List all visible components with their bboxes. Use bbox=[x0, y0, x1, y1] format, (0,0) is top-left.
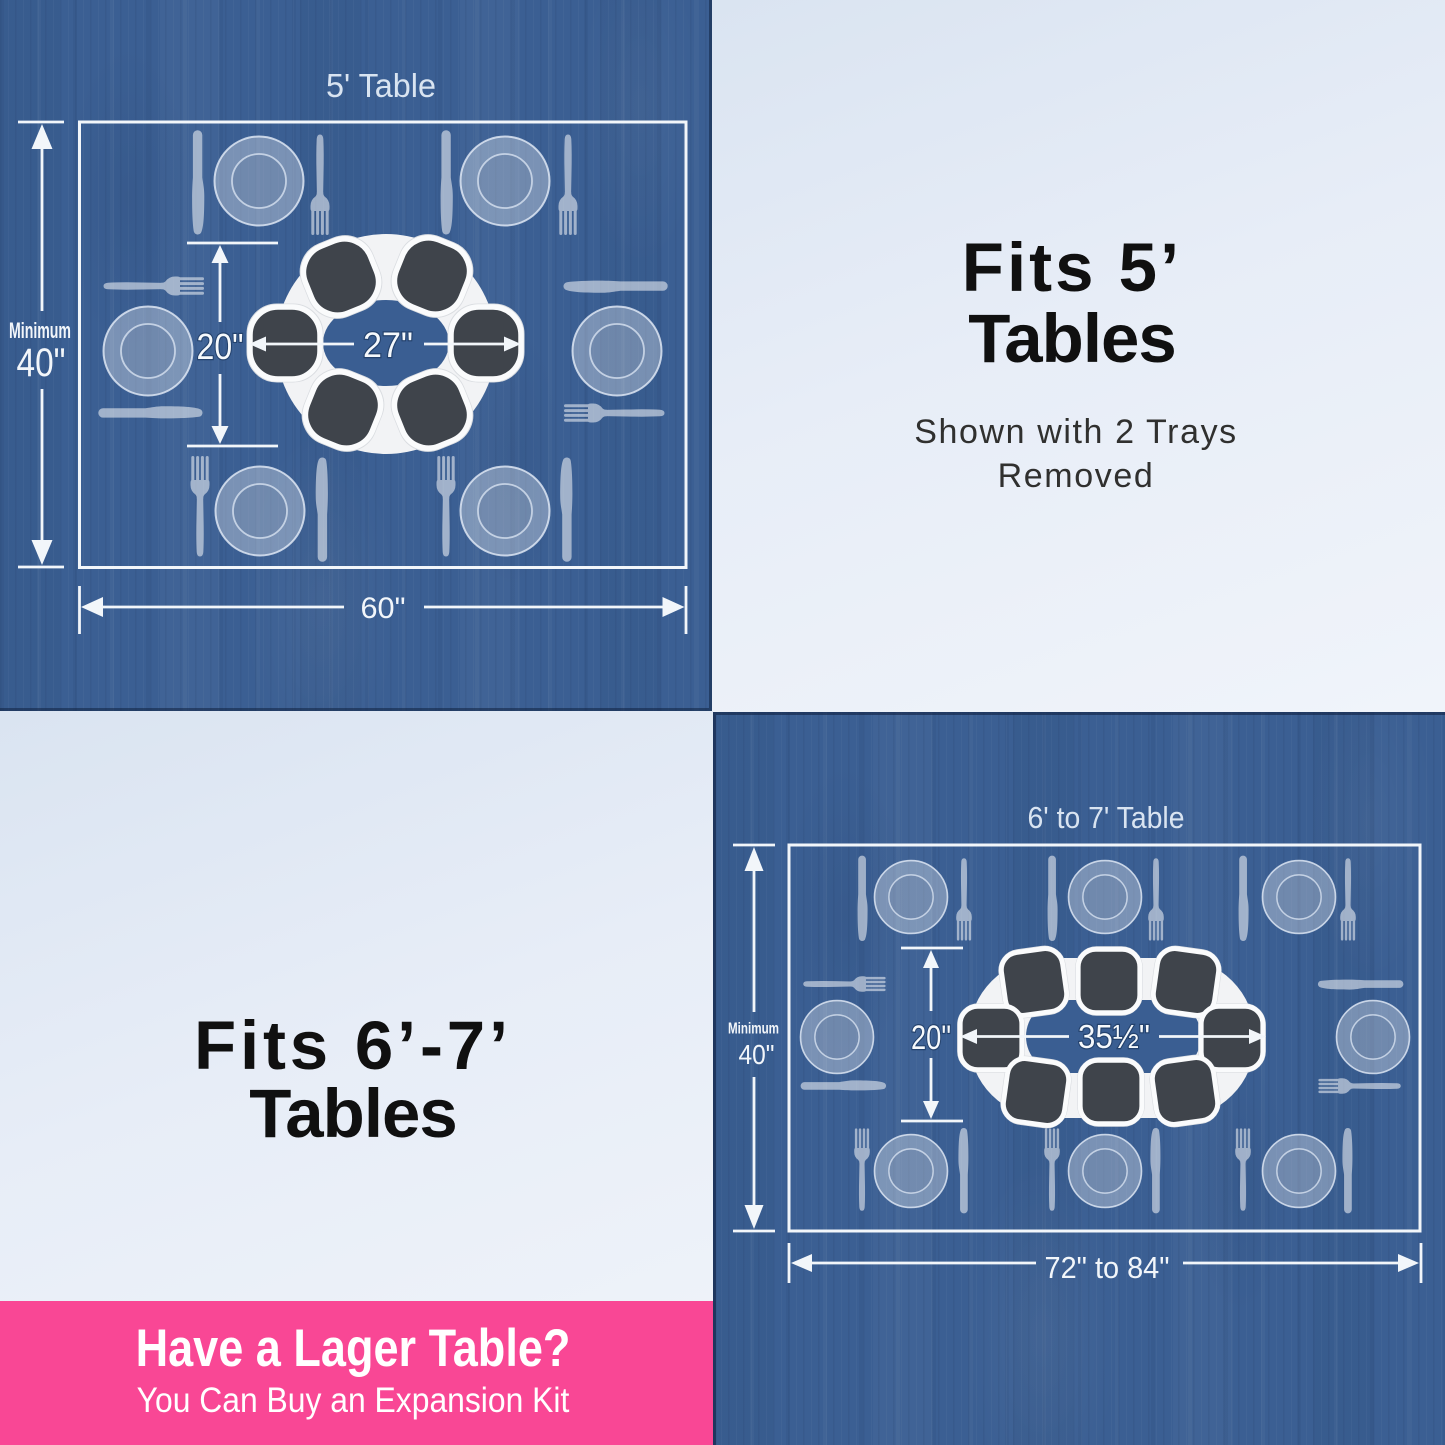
svg-text:27": 27" bbox=[363, 326, 413, 365]
svg-text:20": 20" bbox=[197, 326, 244, 367]
svg-text:35½": 35½" bbox=[1078, 1018, 1150, 1055]
svg-text:5' Table: 5' Table bbox=[326, 67, 436, 104]
svg-text:40": 40" bbox=[739, 1039, 775, 1070]
svg-text:6' to 7' Table: 6' to 7' Table bbox=[1028, 800, 1185, 835]
svg-text:Minimum: Minimum bbox=[728, 1021, 779, 1038]
svg-text:60": 60" bbox=[361, 592, 406, 625]
svg-text:40": 40" bbox=[17, 341, 66, 385]
svg-text:Minimum: Minimum bbox=[9, 318, 71, 343]
svg-text:20": 20" bbox=[911, 1019, 951, 1057]
svg-text:72" to 84": 72" to 84" bbox=[1045, 1250, 1170, 1285]
